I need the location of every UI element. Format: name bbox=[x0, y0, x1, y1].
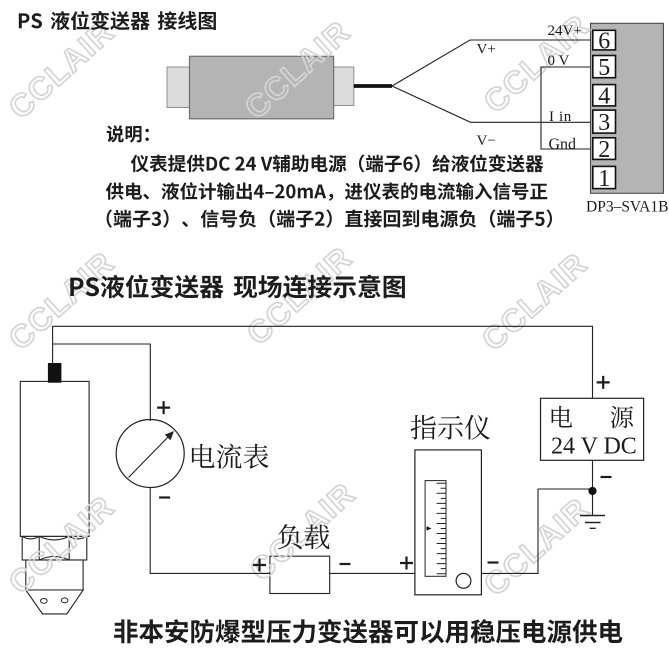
svg-text:V+: V+ bbox=[477, 42, 496, 58]
svg-text:Gnd: Gnd bbox=[549, 136, 577, 153]
svg-text:V−: V− bbox=[477, 133, 496, 149]
svg-text:I in: I in bbox=[549, 109, 572, 125]
svg-text:1: 1 bbox=[598, 166, 610, 192]
svg-text:5: 5 bbox=[598, 55, 610, 81]
svg-text:4: 4 bbox=[598, 84, 610, 110]
svg-text:24V+: 24V+ bbox=[548, 23, 582, 39]
svg-text:2: 2 bbox=[598, 137, 610, 163]
svg-text:0 V: 0 V bbox=[548, 53, 570, 69]
svg-text:3: 3 bbox=[598, 110, 610, 136]
svg-text:24 V DC: 24 V DC bbox=[551, 434, 637, 460]
svg-text:6: 6 bbox=[598, 28, 610, 54]
svg-text:DP3–SVA1B: DP3–SVA1B bbox=[586, 199, 668, 216]
